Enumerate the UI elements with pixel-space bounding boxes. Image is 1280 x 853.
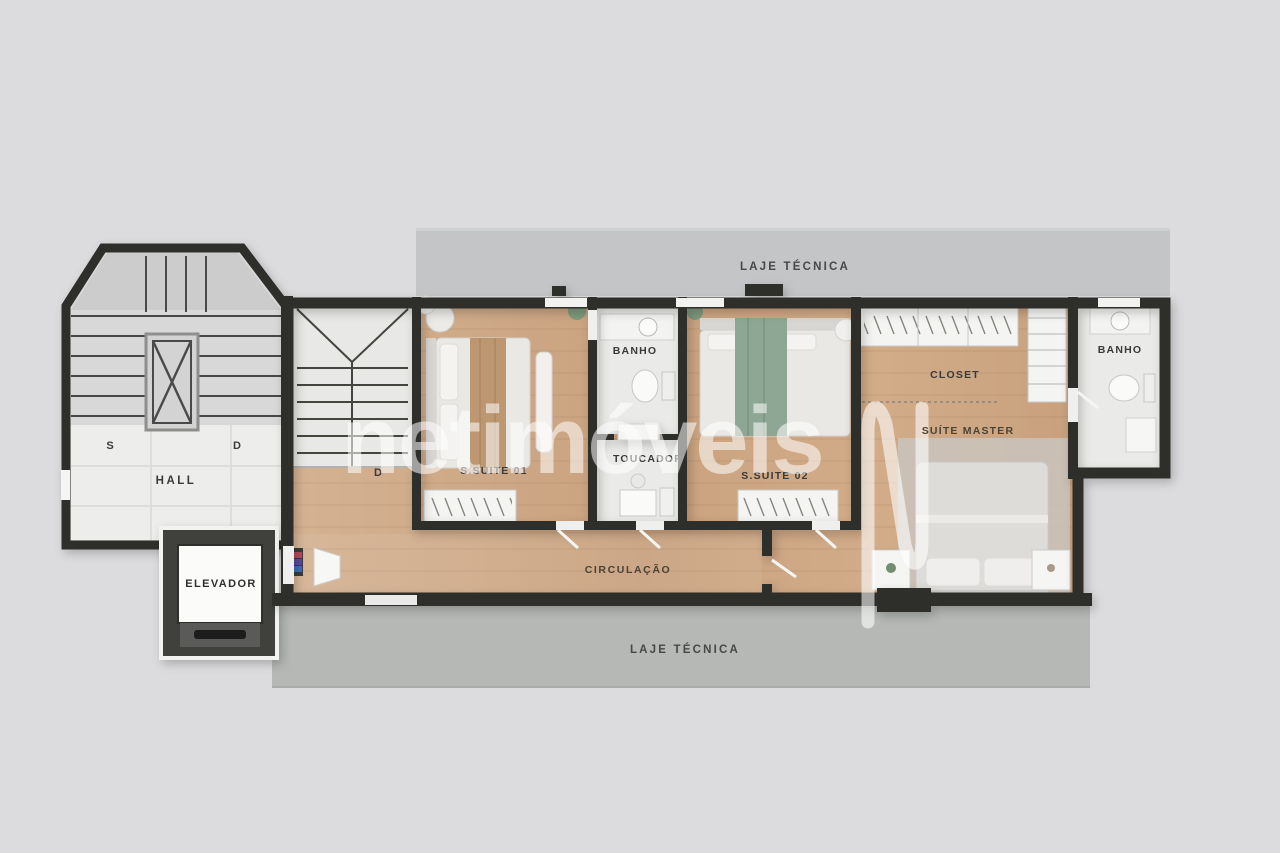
- elevator-shaft: [159, 526, 279, 660]
- label-suite-master: SUÍTE MASTER: [922, 425, 1015, 437]
- label-closet: CLOSET: [930, 369, 980, 381]
- label-stair-down-hall-d: D: [233, 440, 241, 452]
- label-stair-up-s: S: [106, 440, 113, 452]
- label-suite01: S.SUITE 01: [460, 465, 527, 477]
- label-hall: HALL: [156, 475, 197, 487]
- stair-shaft: [146, 334, 198, 430]
- floor-plan-svg: [0, 0, 1280, 853]
- label-stair-down-unit-d: D: [374, 467, 382, 479]
- stair-hall-block: [61, 248, 286, 545]
- label-toucador: TOUCADOR: [613, 453, 683, 465]
- label-banho1: BANHO: [613, 345, 658, 357]
- label-suite02: S.SUITE 02: [741, 470, 808, 482]
- label-circulacao: CIRCULAÇÃO: [585, 564, 672, 576]
- label-laje-tecnica-top: LAJE TÉCNICA: [740, 261, 850, 273]
- hall-window-sill: [61, 470, 70, 500]
- label-laje-tecnica-bottom: LAJE TÉCNICA: [630, 644, 740, 656]
- label-elevador: ELEVADOR: [185, 578, 257, 590]
- floor-plan-image: LAJE TÉCNICA LAJE TÉCNICA S D HALL ELEVA…: [0, 0, 1280, 853]
- label-banho2: BANHO: [1098, 344, 1143, 356]
